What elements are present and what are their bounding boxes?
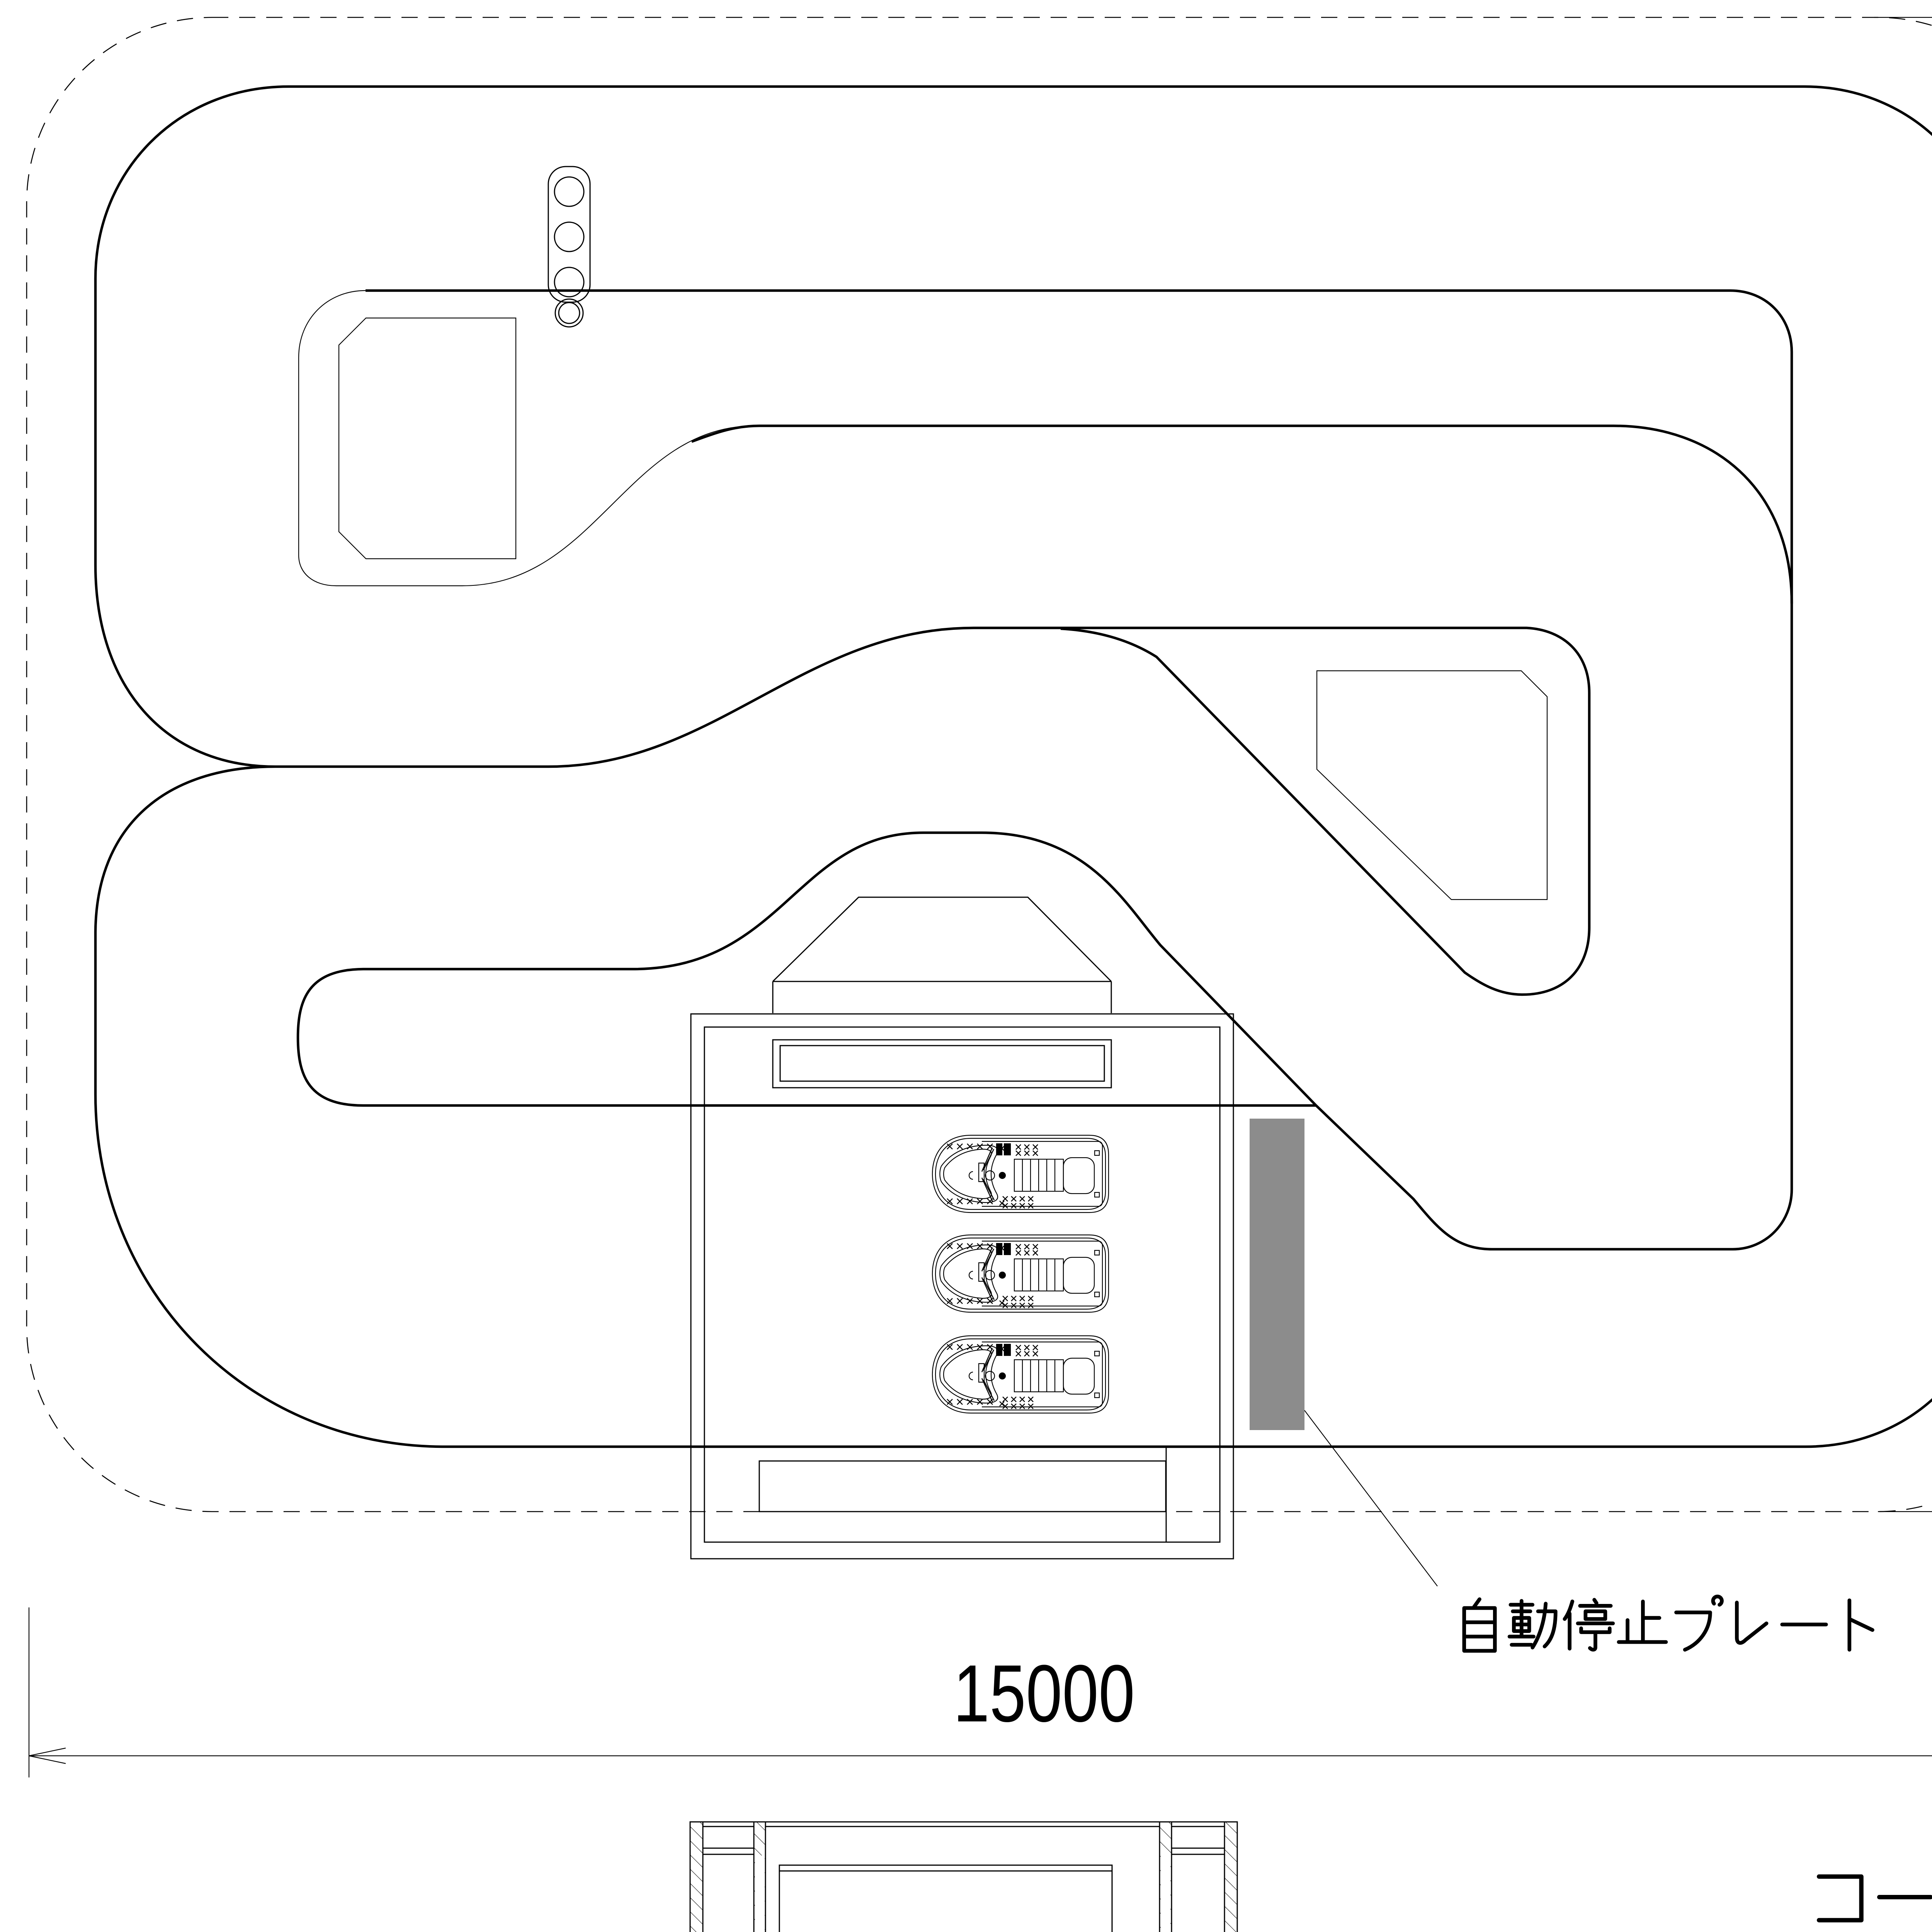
svg-text:15000: 15000	[953, 1648, 1135, 1739]
